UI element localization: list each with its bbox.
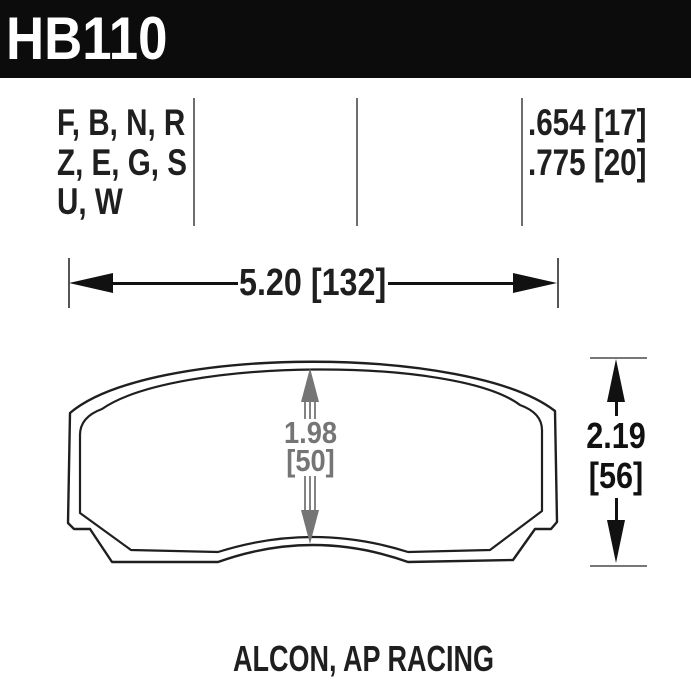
overall-height-label: 2.19 [56] <box>566 416 666 496</box>
spec-column-divider-3 <box>521 98 523 226</box>
compound-codes-line: F, B, N, R <box>57 103 187 143</box>
spec-column-divider-2 <box>356 98 358 226</box>
thickness-line: .654 [17] <box>528 103 646 143</box>
width-dimension-label: 5.20 [132] <box>68 264 558 302</box>
part-number: HB110 <box>6 0 167 78</box>
overall-height-arrowhead-down-icon <box>607 520 625 563</box>
overall-height-shaft-top <box>615 400 618 416</box>
overall-height-shaft-bottom <box>615 498 618 522</box>
applications-label: ALCON, AP RACING <box>233 641 494 677</box>
part-number-bar: HB110 <box>0 0 691 78</box>
height-arrowhead-up-icon <box>301 368 319 402</box>
height-dim-shaft-bottom <box>305 476 315 512</box>
thickness-line: .775 [20] <box>528 143 646 183</box>
catalog-diagram-page: HB110 F, B, N, R Z, E, G, S U, W .654 [1… <box>0 0 691 691</box>
pad-thickness-values: .654 [17] .775 [20] <box>528 103 646 182</box>
spec-column-divider-1 <box>193 98 195 226</box>
height-extension-line-bottom <box>590 565 647 567</box>
friction-height-label: 1.98 [50] <box>250 419 371 474</box>
compound-codes-line: U, W <box>57 182 187 222</box>
compound-codes-line: Z, E, G, S <box>57 143 187 183</box>
compound-codes: F, B, N, R Z, E, G, S U, W <box>57 103 187 222</box>
height-arrowhead-down-icon <box>301 510 319 544</box>
overall-height-arrowhead-up-icon <box>607 359 625 402</box>
